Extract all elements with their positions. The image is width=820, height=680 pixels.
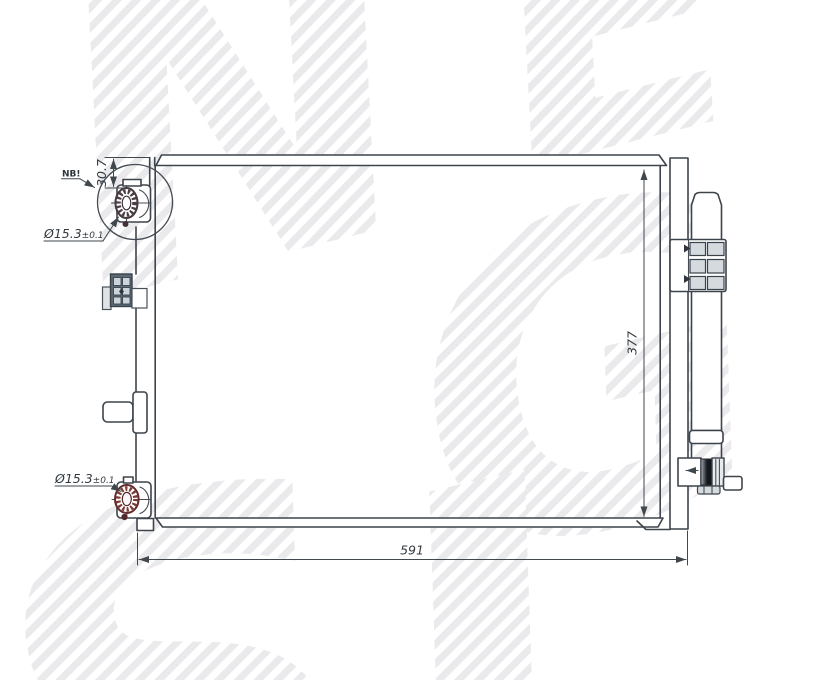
bracket-side-tab	[724, 477, 743, 491]
diameter-value: Ø15.3	[43, 226, 82, 241]
bracket-tab	[103, 402, 133, 422]
bracket-dark-bar	[701, 459, 712, 485]
fitting-top-notch	[124, 477, 134, 483]
bracket-left-block	[678, 458, 701, 486]
dim-value: 591	[400, 543, 424, 558]
tolerance-value: ±0.1	[93, 476, 115, 486]
connector-side-lug	[103, 287, 112, 310]
drier-cylinder	[692, 193, 722, 431]
drawing-canvas: N E G S I	[0, 0, 820, 680]
dim-value: 377	[625, 331, 640, 355]
tolerance-value: ±0.1	[82, 231, 104, 241]
note-label: NB!	[62, 170, 81, 180]
core-bottom-header	[156, 518, 663, 527]
port-bore	[122, 196, 131, 210]
bottom-corner-step	[137, 519, 154, 531]
right-connector-block	[670, 240, 726, 292]
port-bore	[122, 492, 131, 505]
drier-collar-band	[690, 431, 724, 444]
dim-value: 30.7	[94, 159, 109, 187]
port-pin-dot	[123, 221, 129, 227]
condenser-technical-drawing: N E G S I	[0, 0, 820, 680]
bracket-right-block	[712, 458, 724, 486]
receiver-drier	[690, 193, 724, 460]
core-top-header	[156, 155, 667, 166]
port-pin-dot	[121, 514, 127, 520]
bracket-plate	[133, 392, 147, 433]
fitting-top-step	[123, 180, 141, 187]
diameter-value: Ø15.3	[54, 471, 93, 486]
right-connector-cells	[690, 243, 724, 290]
drier-bottom-flange	[698, 486, 721, 494]
connector-mount-outline	[132, 289, 147, 309]
